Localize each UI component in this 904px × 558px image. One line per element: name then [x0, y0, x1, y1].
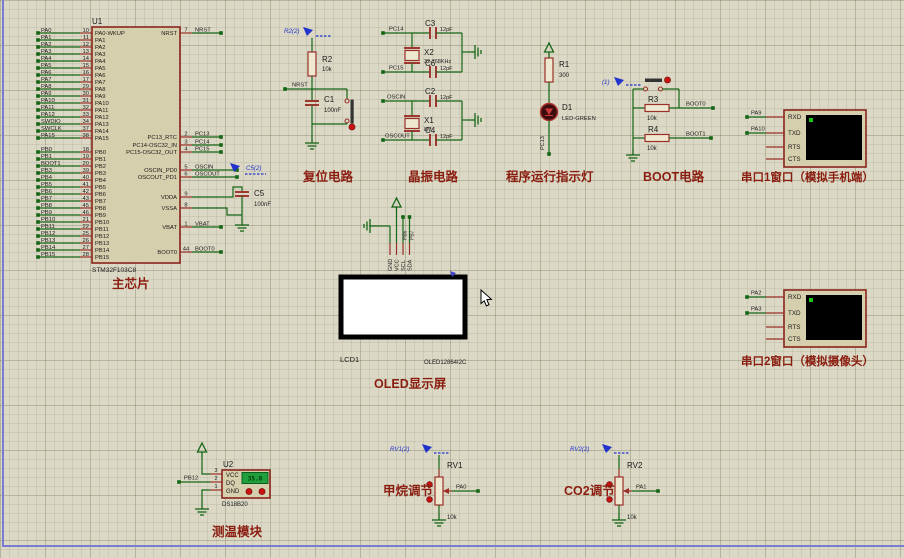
terminal-pin-name: TXD [788, 310, 801, 317]
rv1-ref: RV1 [447, 461, 463, 470]
net-label: OSCOUT [195, 172, 220, 178]
c1-value: 100nF [324, 108, 341, 114]
pin-name: PA2 [95, 45, 106, 51]
net-label: SWDIO [41, 119, 61, 125]
pin-number: 29 [83, 84, 89, 90]
pin-name: PA13 [95, 122, 109, 128]
caption-oled: OLED显示屏 [374, 377, 447, 391]
mouse-cursor [481, 290, 491, 306]
pin-name: PB11 [95, 227, 109, 233]
pin-number: 31 [83, 98, 89, 104]
pa0-net-label: PA0 [456, 485, 467, 491]
pin-number: 13 [83, 49, 89, 55]
boot-blue-label: (1) [602, 79, 610, 86]
pin-name: PA1 [95, 38, 106, 44]
probe-marker-icon [303, 27, 313, 36]
net-label: PA3 [41, 49, 52, 55]
pc13-net-label: PC13 [540, 136, 546, 150]
oled-pin-sda: SDA [408, 259, 414, 271]
potentiometer-rv2[interactable] [615, 477, 623, 505]
probe-marker-icon [422, 444, 432, 453]
oled-pin-vcc: VCC [395, 259, 401, 271]
boot0-net-label: BOOT0 [686, 102, 706, 108]
probe-marker-icon [602, 444, 612, 453]
pin-number: 27 [83, 245, 89, 251]
pin-name: VCC [226, 473, 239, 479]
net-label: BOOT1 [41, 161, 61, 167]
pin-name: OSCOUT_PD1 [138, 175, 177, 181]
pin-name: PA0-WKUP [95, 31, 125, 37]
caption-methane-adjust: 甲烷调节 [383, 483, 434, 498]
pin-name: PB1 [95, 157, 106, 163]
rv1-blue-label: RV1(2) [390, 446, 410, 453]
pin-name: PA11 [95, 108, 108, 114]
pin-name: PB12 [95, 234, 109, 240]
c5-blue-label: C5(2) [246, 165, 261, 172]
caption-main-chip: 主芯片 [112, 276, 150, 291]
c3-value: 12pF [440, 27, 453, 33]
net-label: PA4 [41, 56, 52, 62]
resistor-r2[interactable] [308, 52, 316, 76]
net-label: PB11 [41, 224, 55, 230]
temperature-value: 35.0 [248, 476, 263, 483]
mcu-chip[interactable]: U1 STM32F103C8 PA010PA0-WKUPPA111PA1PA21… [36, 17, 239, 274]
r4-value: 10k [647, 146, 658, 152]
reset-circuit[interactable]: R2(2) R2 10k NRST C1 100nF [283, 27, 355, 149]
caption-co2-adjust: CO2调节 [564, 483, 615, 498]
d1-value: LED-GREEN [562, 116, 596, 122]
pin-number: 19 [83, 154, 89, 160]
c5-decoupling-cap[interactable]: C5(2) C5 100nF [180, 163, 271, 231]
schematic-sheet[interactable]: U1 STM32F103C8 PA010PA0-WKUPPA111PA1PA21… [0, 0, 904, 558]
pin-number: 37 [83, 126, 89, 132]
pin-name: PA8 [95, 87, 106, 93]
pin-number: 17 [83, 77, 89, 83]
pin-number: 14 [83, 56, 90, 62]
potentiometer-rv1[interactable] [435, 477, 443, 505]
c4-ref: C4 [425, 126, 436, 135]
terminal-pin-name: RXD [788, 294, 802, 301]
terminal-pin-name: RXD [788, 114, 802, 121]
terminal-pin-name: TXD [788, 130, 801, 137]
pin-name: PB8 [95, 206, 106, 212]
net-label: PA11 [41, 105, 54, 111]
terminal-cursor-icon [809, 118, 813, 122]
x1-ref: X1 [424, 116, 434, 125]
u2-part: DS18B20 [222, 502, 248, 508]
pin-name: PB4 [95, 178, 107, 184]
pin-number: 42 [83, 189, 89, 195]
ground-icon [195, 502, 209, 515]
pin-name: PA6 [95, 73, 106, 79]
r3-ref: R3 [648, 95, 659, 104]
ground-icon [612, 513, 626, 526]
pin-name: PA5 [95, 66, 106, 72]
pin-number: 34 [83, 119, 90, 125]
caption-reset-circuit: 复位电路 [302, 169, 354, 184]
power-arrow-icon [198, 443, 207, 458]
temp-down-button[interactable] [259, 489, 265, 495]
net-label: PC13 [195, 132, 210, 138]
rv1-value: 10k [447, 515, 458, 521]
button-cap-icon[interactable] [349, 124, 355, 130]
net-label: PA2 [41, 42, 52, 48]
pb12-net-label: PB12 [184, 476, 198, 482]
net-label: PA10 [41, 98, 55, 104]
sda-net-label: PB7 [410, 230, 416, 240]
net-label: PB10 [41, 217, 55, 223]
button-cap-icon[interactable] [665, 77, 671, 83]
net-label: PA10 [751, 127, 765, 133]
pin-number: 41 [83, 182, 89, 188]
pin-number: 2 [214, 476, 217, 482]
led-d1[interactable] [541, 104, 558, 121]
net-label: PA6 [41, 70, 52, 76]
caption-terminal-2: 串口2窗口（模拟摄像头） [741, 354, 874, 368]
pin-number: 40 [83, 175, 89, 181]
pin-name: PA15 [95, 136, 109, 142]
pin-number: 32 [83, 105, 89, 111]
oled-part: OLED12864I2C [424, 360, 467, 366]
pin-number: 3 [214, 468, 217, 474]
net-label: PB5 [41, 182, 52, 188]
power-arrow-icon [545, 43, 554, 58]
terminal-screen[interactable] [806, 115, 862, 160]
pin-name: VSSA [162, 206, 178, 212]
c1-ref: C1 [324, 95, 335, 104]
net-label: PA9 [41, 91, 52, 97]
pin-name: PA9 [95, 94, 106, 100]
oled-pin-scl: SCL [401, 260, 407, 271]
ground-icon [468, 113, 481, 127]
pin-number: 43 [83, 196, 89, 202]
nrst-net-label: NRST [292, 83, 308, 89]
c3-ref: C3 [425, 19, 436, 28]
pin-name: PB13 [95, 241, 109, 247]
pin-name: PB2 [95, 164, 106, 170]
c2-ref: C2 [425, 87, 436, 96]
r1-ref: R1 [559, 60, 570, 69]
crystal-x2[interactable] [405, 51, 419, 61]
oled-pin-gnd: GND [388, 259, 394, 271]
net-label: PA2 [751, 291, 762, 297]
boot-circuit[interactable]: (1) R3 10k BOOT0 R4 10k [602, 77, 715, 161]
pin-name: GND [226, 489, 240, 495]
net-label: BOOT0 [195, 247, 215, 253]
net-label: OSCOUT [385, 134, 410, 140]
net-label: PA15 [41, 133, 55, 139]
pin-number: 33 [83, 112, 89, 118]
net-label: PA12 [41, 112, 55, 118]
oled-panel[interactable] [341, 277, 465, 337]
d1-ref: D1 [562, 103, 573, 112]
resistor-r4[interactable] [645, 135, 669, 142]
pin-name: BOOT0 [157, 250, 177, 256]
c6-ref: C6 [425, 59, 436, 68]
pin-number: 11 [83, 35, 89, 41]
resistor-r1[interactable] [545, 58, 553, 82]
oled-display[interactable]: PB6 PB7 GND VCC SCL SDA LCD1 OLED12864I2… [340, 198, 467, 366]
net-label: PC15 [195, 147, 210, 153]
pin-number: 10 [83, 28, 89, 34]
ground-icon [468, 45, 481, 59]
chip-part-number: STM32F103C8 [92, 267, 136, 274]
net-label: PA3 [751, 307, 762, 313]
net-label: OSCIN [195, 165, 213, 171]
net-label: SWCLK [41, 126, 62, 132]
ground-icon [626, 148, 640, 161]
pin-name: PB10 [95, 220, 109, 226]
reset-blue-label: R2(2) [284, 28, 299, 35]
pin-name: PB3 [95, 171, 106, 177]
pin-name: OSCIN_PD0 [144, 168, 177, 174]
temp-up-button[interactable] [246, 489, 252, 495]
net-label: PA1 [41, 35, 52, 41]
pin-number: 16 [83, 70, 89, 76]
pin-number: 28 [83, 252, 89, 258]
pin-name: PB5 [95, 185, 106, 191]
net-label: PB3 [41, 168, 52, 174]
pin-name: PA10 [95, 101, 109, 107]
schematic-canvas[interactable]: U1 STM32F103C8 PA010PA0-WKUPPA111PA1PA21… [0, 0, 904, 558]
net-label: PA9 [751, 111, 762, 117]
pin-number: 25 [83, 231, 89, 237]
pin-name: NRST [161, 31, 177, 37]
pin-name: PB9 [95, 213, 106, 219]
net-label: PB9 [41, 210, 52, 216]
net-label: PA5 [41, 63, 52, 69]
rv2-blue-label: RV2(2) [570, 446, 590, 453]
net-label: PB13 [41, 238, 55, 244]
r1-value: 300 [559, 73, 570, 79]
net-label: NRST [195, 28, 211, 34]
net-label: PB12 [41, 231, 55, 237]
pa1-net-label: PA1 [636, 485, 647, 491]
net-label: PB7 [41, 196, 52, 202]
pin-name: PB7 [95, 199, 106, 205]
pin-name: PC14-OSC32_IN [133, 143, 177, 149]
pin-name: VDDA [161, 195, 177, 201]
pin-number: 20 [83, 161, 89, 167]
pin-number: 12 [83, 42, 89, 48]
rv2-ref: RV2 [627, 461, 643, 470]
r2-ref: R2 [322, 55, 333, 64]
pin-number: 1 [214, 484, 217, 490]
pin-number: 15 [83, 63, 89, 69]
pin-name: VBAT [162, 225, 177, 231]
pin-name: PA12 [95, 115, 109, 121]
c4-value: 12pF [440, 134, 453, 140]
ground-icon [305, 136, 319, 149]
net-label: PB0 [41, 147, 52, 153]
terminal-pin-name: RTS [788, 144, 800, 151]
u2-ref: U2 [223, 460, 234, 469]
net-label: PB14 [41, 245, 56, 251]
x2-ref: X2 [424, 48, 434, 57]
c5-ref: C5 [254, 189, 265, 198]
net-label: PB1 [41, 154, 52, 160]
pin-name: PB0 [95, 150, 106, 156]
net-label: PB8 [41, 203, 52, 209]
caption-temp-module: 测温模块 [212, 524, 263, 539]
virtual-terminal-1[interactable]: RXDPA9TXDPA10RTSCTS [745, 110, 866, 167]
net-label: PB4 [41, 175, 53, 181]
c5-value: 100nF [254, 202, 271, 208]
pin-number: 39 [83, 168, 89, 174]
terminal-pin-name: CTS [788, 336, 801, 343]
r3-value: 10k [647, 116, 658, 122]
pin-name: DQ [226, 481, 235, 487]
resistor-r3[interactable] [645, 105, 669, 112]
pin-name: PA7 [95, 80, 106, 86]
r4-ref: R4 [648, 125, 659, 134]
ground-icon [235, 218, 249, 231]
pin-number: 26 [83, 238, 89, 244]
pin-number: 46 [83, 210, 89, 216]
pin-name: PB6 [95, 192, 106, 198]
crystal-x1[interactable] [405, 119, 419, 129]
net-label: PB6 [41, 189, 52, 195]
pin-name: PA4 [95, 59, 106, 65]
rv2-value: 10k [627, 515, 638, 521]
indicator-circuit[interactable]: R1 300 D1 LED-GREEN PC13 [540, 43, 596, 156]
pin-number: 38 [83, 133, 89, 139]
net-label: PC14 [389, 27, 404, 33]
terminal-cursor-icon [809, 298, 813, 302]
net-label: PA7 [41, 77, 52, 83]
caption-terminal-1: 串口1窗口（模拟手机端） [741, 170, 874, 184]
net-label: PB15 [41, 252, 55, 258]
net-label: PC14 [195, 140, 210, 146]
pin-name: PB14 [95, 248, 110, 254]
virtual-terminal-2[interactable]: RXDPA2TXDPA3RTSCTS [745, 290, 866, 347]
pin-number: 30 [83, 91, 89, 97]
r2-value: 10k [322, 67, 333, 73]
net-label: PA0 [41, 28, 52, 34]
pin-name: PC13_RTC [147, 135, 177, 141]
ground-icon [432, 513, 446, 526]
pin-number: 45 [83, 203, 89, 209]
pin-name: PA14 [95, 129, 110, 135]
temp-module[interactable]: PB12 3 2 1 U2 VCC DQ GND 35.0 DS18B20 [177, 443, 270, 515]
caption-boot-circuit: BOOT电路 [643, 169, 705, 184]
net-label: VBAT [195, 222, 210, 228]
pin-name: PA3 [95, 52, 106, 58]
pin-number: 22 [83, 224, 89, 230]
oled-ref: LCD1 [340, 355, 359, 364]
c2-value: 12pF [440, 95, 453, 101]
power-arrow-icon [392, 198, 401, 213]
pin-name: PC15-OSC32_OUT [126, 150, 177, 156]
net-label: PA8 [41, 84, 52, 90]
terminal-screen[interactable] [806, 295, 862, 340]
terminal-pin-name: CTS [788, 156, 801, 163]
probe-marker-icon [614, 77, 624, 86]
pin-number: 18 [83, 147, 89, 153]
chip-ref: U1 [92, 17, 103, 26]
pin-number: 21 [83, 217, 89, 223]
ground-icon [364, 219, 377, 233]
crystal-circuit[interactable]: PC14 C3 12pF X2 32.768KHz PC15 C6 12pF [381, 19, 481, 146]
caption-indicator: 程序运行指示灯 [506, 169, 594, 184]
pin-name: PB15 [95, 255, 109, 261]
net-label: PC15 [389, 66, 404, 72]
net-label: OSCIN [387, 95, 405, 101]
scl-net-label: PB6 [403, 230, 409, 240]
boot1-net-label: BOOT1 [686, 132, 706, 138]
terminal-pin-name: RTS [788, 324, 800, 331]
caption-crystal-circuit: 晶振电路 [408, 169, 459, 184]
c6-value: 12pF [440, 66, 453, 72]
